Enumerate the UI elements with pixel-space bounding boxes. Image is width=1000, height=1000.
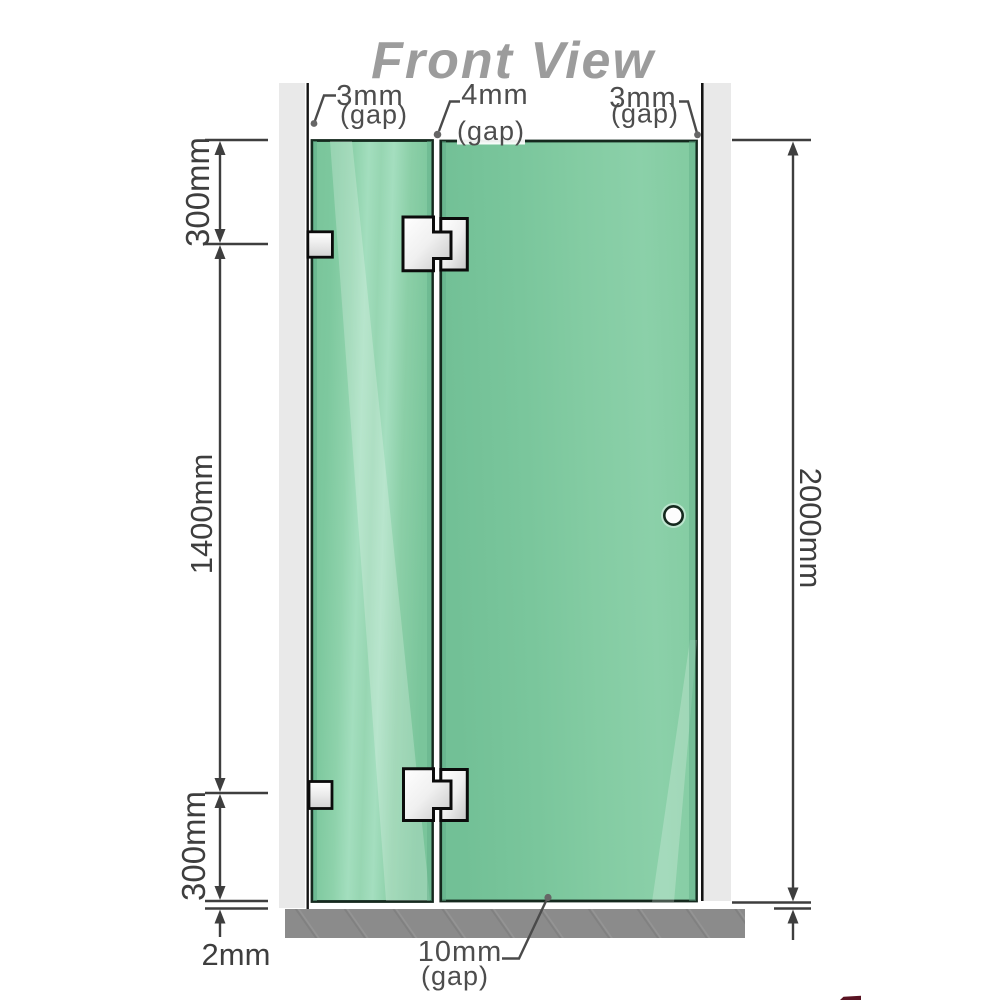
svg-text:(gap): (gap) — [340, 100, 408, 130]
svg-text:(gap): (gap) — [611, 99, 679, 129]
svg-text:(gap): (gap) — [457, 116, 525, 146]
svg-text:300mm: 300mm — [179, 137, 216, 247]
svg-text:2000mm: 2000mm — [793, 468, 828, 589]
svg-text:300mm: 300mm — [175, 791, 212, 901]
svg-text:(gap): (gap) — [421, 961, 489, 991]
svg-text:4mm: 4mm — [461, 79, 528, 111]
svg-text:1400mm: 1400mm — [184, 454, 219, 575]
svg-text:2mm: 2mm — [202, 937, 271, 972]
